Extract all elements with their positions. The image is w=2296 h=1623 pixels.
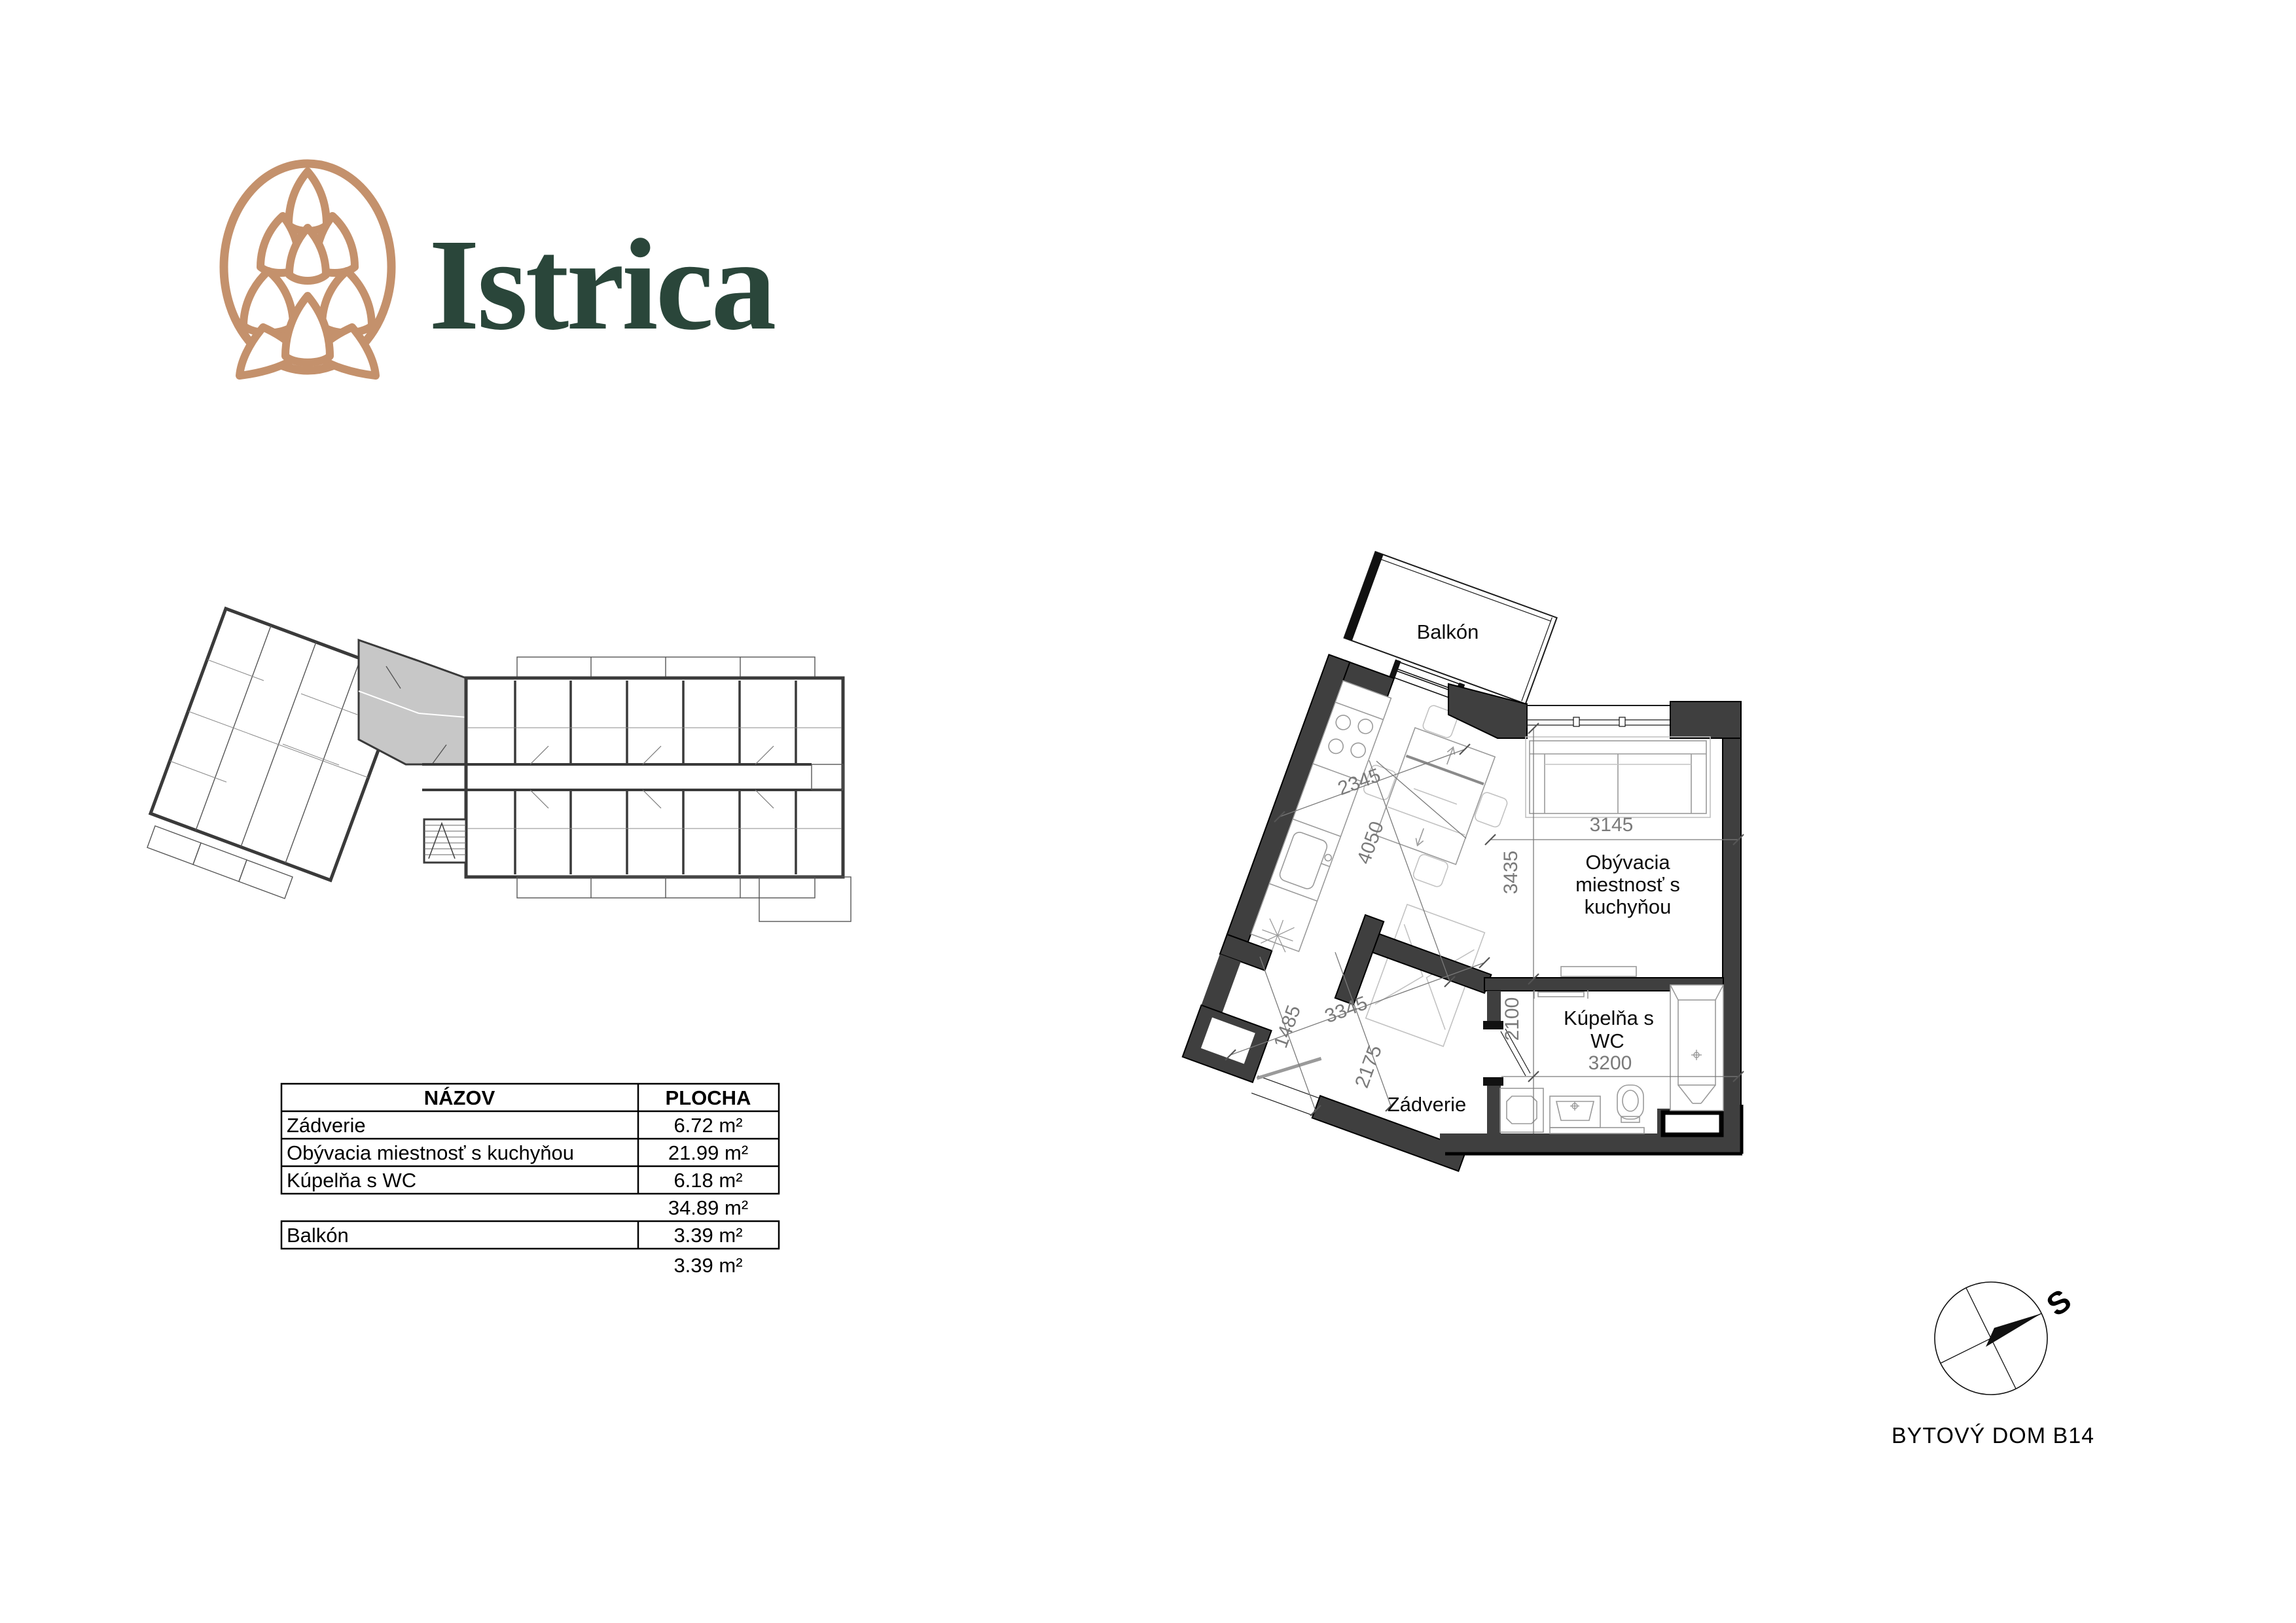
area-table: NÁZOV PLOCHA Zádverie 6.72 m² Obývacia m… [281, 1084, 779, 1277]
sofa [1526, 737, 1710, 817]
overview-staircase [424, 819, 466, 863]
building-overview-plan [0, 0, 851, 921]
plan-sheet: Istrica [0, 0, 2296, 1623]
row-bathroom-name: Kúpelňa s WC [287, 1169, 416, 1192]
bottom-wall [1440, 1133, 1659, 1154]
washing-machine [1500, 1088, 1543, 1132]
overview-highlighted-unit [359, 640, 466, 764]
vanity-sink [1550, 1096, 1644, 1133]
row-balcony-area: 3.39 m² [673, 1224, 742, 1247]
compass-rose: S [1935, 1282, 2077, 1395]
dim-hall-height: 2175 [1351, 1043, 1386, 1091]
dim-kitchen-length: 4050 [1353, 819, 1388, 867]
table-header-name: NÁZOV [424, 1086, 495, 1109]
living-line1: Obývacia [1585, 851, 1670, 874]
north-letter: S [2041, 1283, 2078, 1323]
building-title: BYTOVÝ DOM B14 [1892, 1423, 2094, 1448]
dim-bath-width: 3200 [1588, 1052, 1632, 1074]
corner-wall [1670, 702, 1741, 738]
pinecone-icon [224, 164, 391, 376]
bath-wall-lower [1487, 1081, 1501, 1135]
dim-hall-depth: 1485 [1270, 1003, 1305, 1051]
sheet-canvas: Istrica [0, 0, 2296, 1623]
row-zadverie-area: 6.72 m² [673, 1114, 742, 1137]
toilet [1617, 1085, 1643, 1122]
brand-name: Istrica [429, 213, 774, 357]
living-line2: miestnosť s [1575, 873, 1680, 896]
dim-bath-depth: 2100 [1501, 997, 1523, 1041]
row-zadverie-name: Zádverie [287, 1114, 366, 1137]
bath-wall-upper [1487, 991, 1501, 1025]
tv-bench [1561, 967, 1636, 976]
living-line3: kuchyňou [1585, 895, 1672, 918]
table-header-area: PLOCHA [666, 1086, 751, 1109]
interior-total: 34.89 m² [668, 1196, 748, 1219]
apartment-floor-plan: Balkón Obývacia miestnosť s kuchyňou Kúp… [1178, 549, 1744, 1171]
right-wall [1723, 738, 1741, 1110]
overview-right-wing [422, 657, 851, 921]
entry-alcove [1183, 1005, 1272, 1082]
row-living-name: Obývacia miestnosť s kuchyňou [287, 1141, 574, 1164]
bathroom-line2: WC [1590, 1029, 1624, 1052]
north-arrow [1986, 1313, 2041, 1347]
label-hallway: Zádverie [1388, 1093, 1467, 1116]
dim-living-depth: 3435 [1500, 851, 1522, 895]
overview-left-wing [0, 0, 406, 899]
rotated-wing [1178, 549, 1648, 1171]
living-window [1527, 703, 1670, 728]
row-living-area: 21.99 m² [668, 1141, 748, 1164]
row-bathroom-area: 6.18 m² [673, 1169, 742, 1192]
bathroom-line1: Kúpelňa s [1564, 1007, 1654, 1029]
dim-living-width: 3145 [1590, 814, 1634, 836]
label-bathroom: Kúpelňa s WC [1564, 1007, 1654, 1052]
balcony-total: 3.39 m² [673, 1254, 742, 1277]
bathtub [1670, 985, 1723, 1111]
label-living-room: Obývacia miestnosť s kuchyňou [1575, 851, 1680, 918]
bath-niche [1663, 1113, 1721, 1135]
junction-wall [1448, 684, 1527, 738]
istrica-logo: Istrica [224, 164, 774, 376]
label-balcony: Balkón [1417, 620, 1479, 643]
row-balcony-name: Balkón [287, 1224, 349, 1247]
